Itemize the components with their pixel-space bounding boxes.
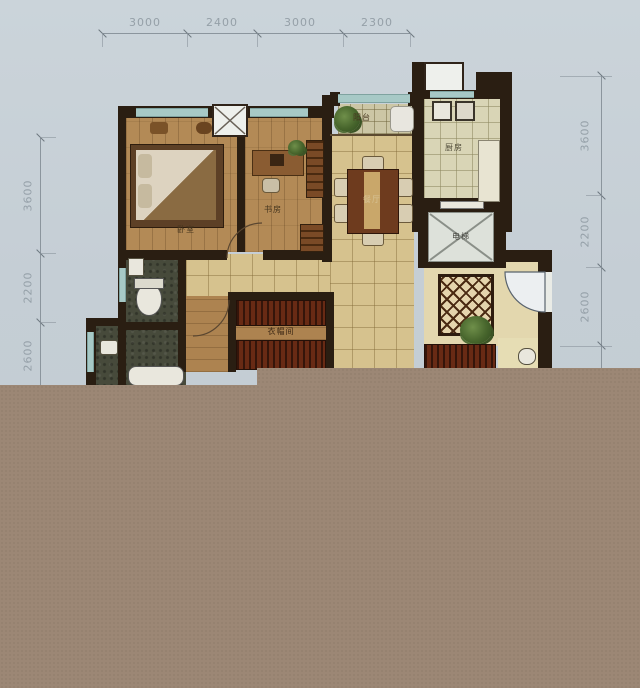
plant-icon <box>288 140 305 155</box>
bathroom3-sink <box>518 348 536 365</box>
bathroom2-window <box>87 332 94 372</box>
bathtub <box>128 366 184 386</box>
floor-plan-photo: 3000 2400 3000 2300 3600 2200 2600 3600 … <box>0 0 640 688</box>
extension-line <box>586 195 602 196</box>
kitchen-window <box>430 91 474 98</box>
dimension-label: 2600 <box>579 277 592 337</box>
closet-hall-floor <box>186 296 230 372</box>
dimension-label: 3000 <box>270 16 330 29</box>
extension-line <box>102 33 103 47</box>
cloakroom-label: 衣帽间 <box>249 326 313 337</box>
dimension-label: 2200 <box>579 202 592 262</box>
wall <box>228 292 236 372</box>
bookshelf <box>306 140 324 198</box>
dimension-label: 2300 <box>347 16 407 29</box>
elevator-door-slot <box>440 201 484 209</box>
extension-line <box>40 253 56 254</box>
study-window <box>250 108 308 117</box>
pillow <box>138 154 152 178</box>
dimension-label: 3600 <box>579 106 592 166</box>
pillow <box>138 184 152 208</box>
balcony-chair <box>390 106 414 132</box>
balcony-living-divider <box>330 134 414 136</box>
extension-line <box>586 267 602 268</box>
nightstand <box>150 122 168 134</box>
extension-line <box>40 322 56 323</box>
wall <box>228 292 334 300</box>
plant-icon <box>460 316 492 344</box>
right-dimension-line <box>601 75 602 368</box>
dimension-label: 2400 <box>192 16 252 29</box>
ac-platform <box>212 104 248 137</box>
kitchen-sink <box>432 101 452 121</box>
dimension-label: 2600 <box>22 326 35 386</box>
censor-overlay <box>0 385 640 688</box>
bedroom-window <box>136 108 208 117</box>
dining-chair <box>397 204 413 223</box>
extension-line <box>40 137 56 138</box>
wall <box>178 254 186 372</box>
wall <box>326 292 334 372</box>
desk-chair <box>262 178 280 193</box>
extension-line <box>343 33 344 47</box>
extension-line <box>187 33 188 47</box>
kitchen-stove <box>455 101 475 121</box>
nightstand <box>196 122 212 134</box>
dimension-label: 3600 <box>22 166 35 226</box>
bathroom2-sink <box>100 340 118 355</box>
extension-line <box>410 33 411 47</box>
bathroom-window <box>119 268 126 302</box>
wall <box>538 312 552 372</box>
kitchen-counter <box>478 140 500 202</box>
toilet-tank <box>134 278 164 289</box>
wardrobe <box>236 300 326 326</box>
bedroom-label: 卧室 <box>162 224 210 235</box>
elevator-label: 电梯 <box>437 231 485 242</box>
bathroom-sink <box>128 258 144 276</box>
wall <box>538 250 552 272</box>
hall-cabinet <box>424 344 496 370</box>
wall <box>126 322 186 330</box>
dining-label: 餐厅 <box>348 194 396 205</box>
dimension-label: 2200 <box>22 258 35 318</box>
left-dimension-line <box>40 137 41 389</box>
balcony-label: 阳台 <box>338 112 386 123</box>
dimension-label: 3000 <box>115 16 175 29</box>
cabinet <box>300 224 324 252</box>
extension-line <box>560 76 612 77</box>
shaft-box <box>424 62 464 92</box>
desk-monitor <box>270 154 284 166</box>
wall <box>118 106 126 388</box>
kitchen-label: 厨房 <box>430 142 478 153</box>
extension-line <box>560 346 612 347</box>
extension-line <box>257 33 258 47</box>
wall <box>86 318 126 326</box>
dining-chair <box>397 178 413 197</box>
study-label: 书房 <box>249 204 297 215</box>
entry-door-opening <box>538 272 552 312</box>
wardrobe <box>236 340 326 370</box>
balcony-window <box>338 94 410 103</box>
